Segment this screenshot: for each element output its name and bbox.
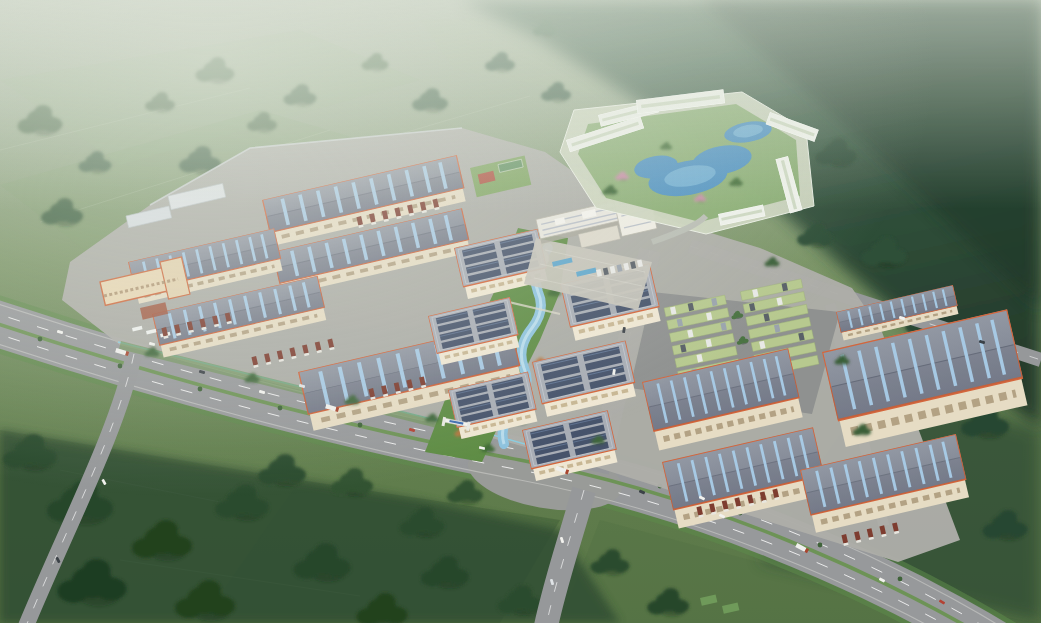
atmosphere-haze bbox=[0, 0, 1041, 623]
aerial-render-image: Aerial rendering of a logistics industri… bbox=[0, 0, 1041, 623]
